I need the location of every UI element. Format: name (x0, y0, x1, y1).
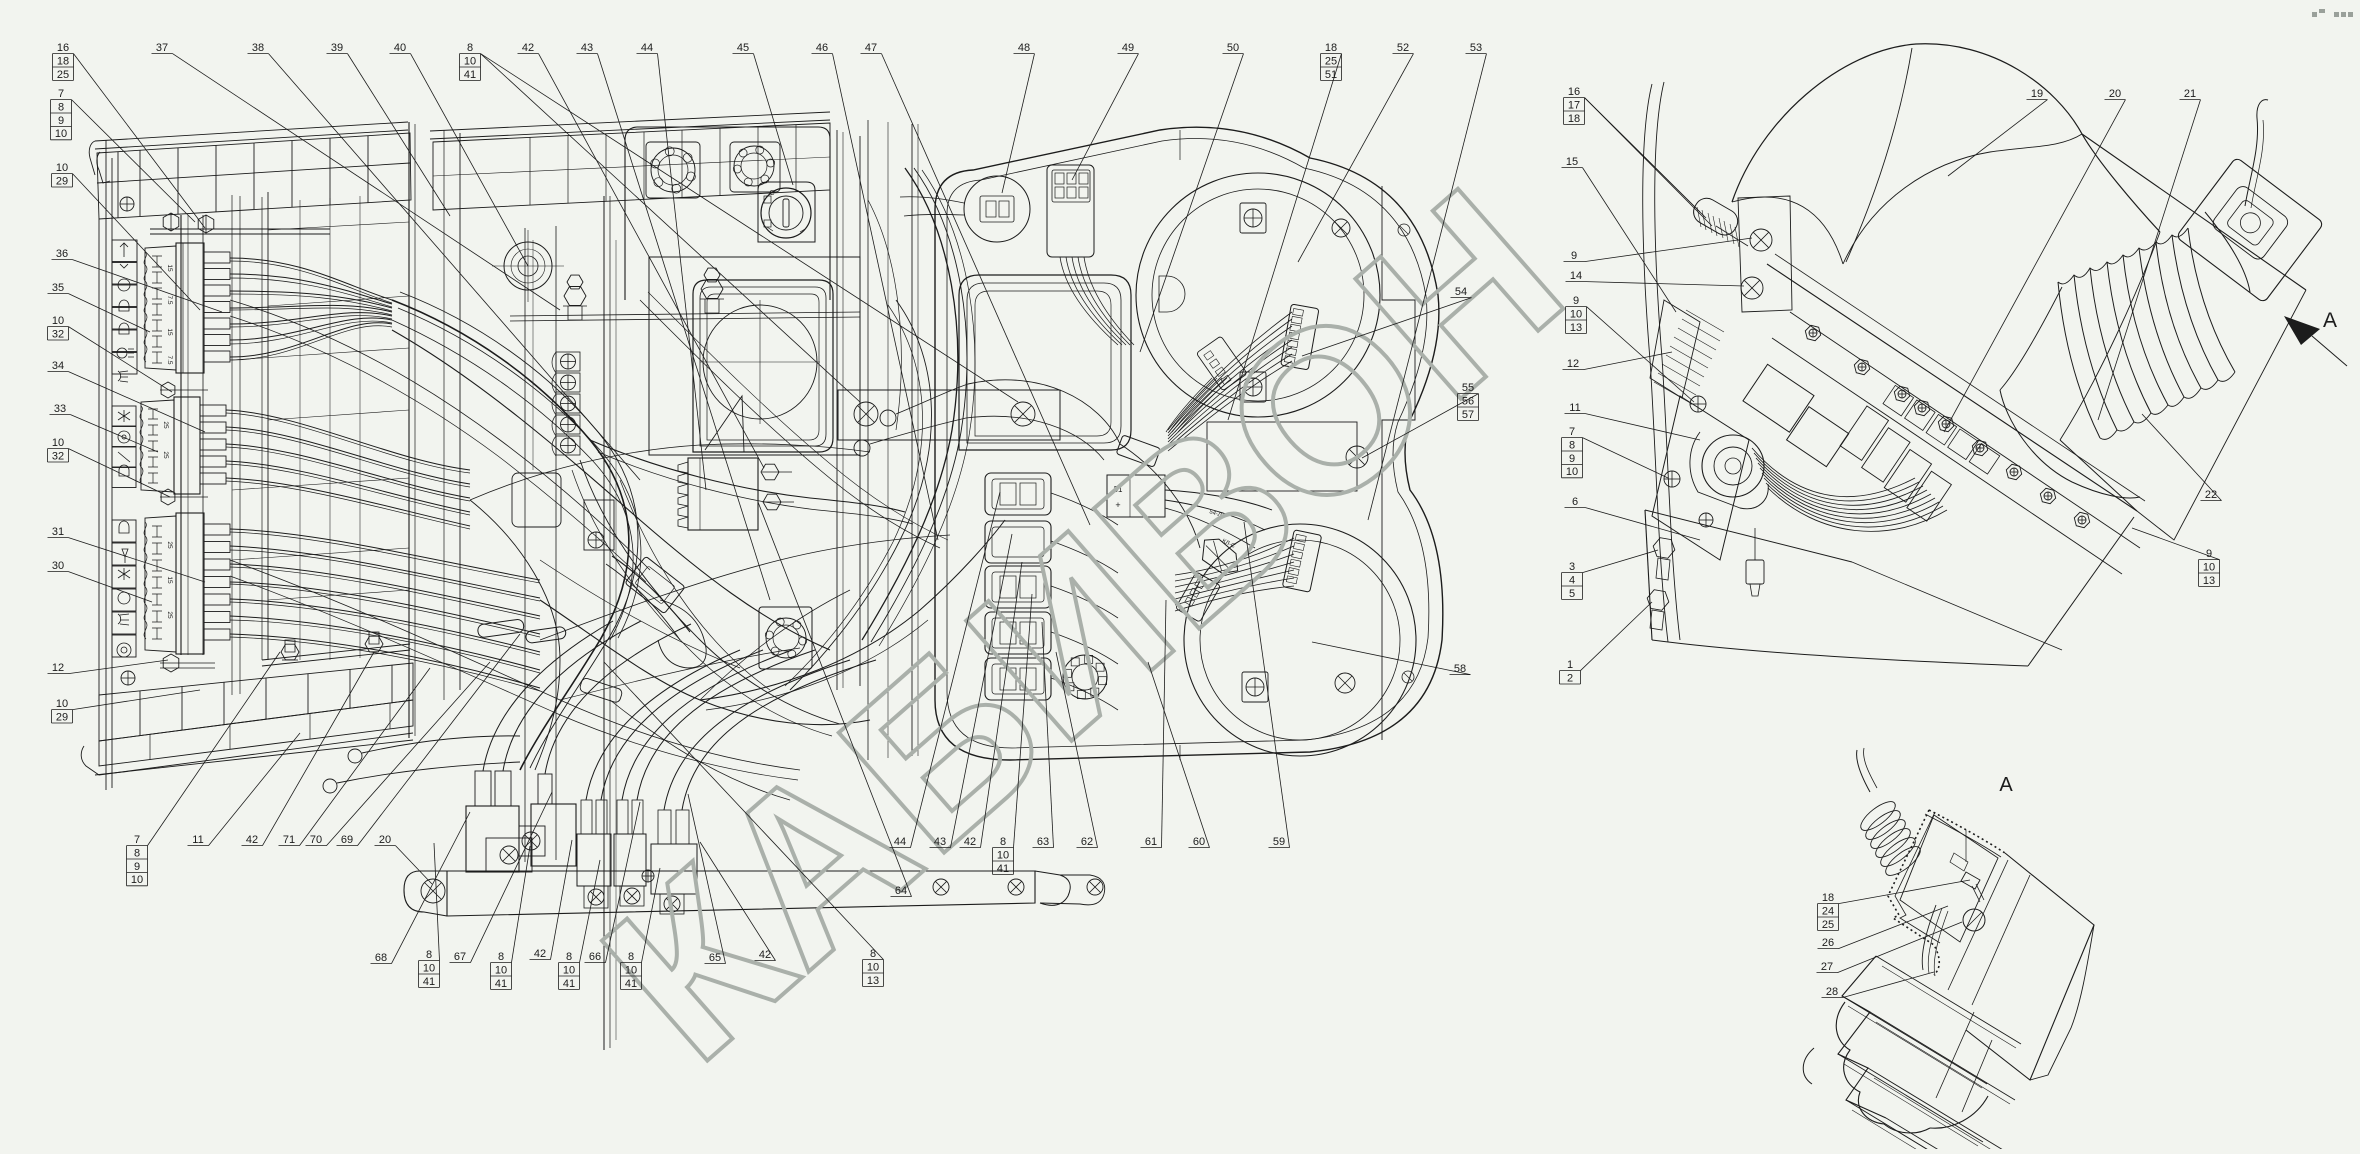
svg-text:64: 64 (895, 885, 907, 897)
svg-text:25: 25 (57, 69, 69, 81)
svg-text:36: 36 (56, 248, 68, 260)
svg-text:17: 17 (1568, 99, 1580, 111)
svg-text:46: 46 (816, 42, 828, 54)
svg-text:42: 42 (522, 42, 534, 54)
svg-text:53: 53 (1470, 42, 1482, 54)
svg-text:19: 19 (2031, 88, 2043, 100)
svg-text:10: 10 (495, 964, 507, 976)
svg-text:28: 28 (1826, 986, 1838, 998)
svg-text:43: 43 (934, 836, 946, 848)
svg-text:20: 20 (2109, 88, 2121, 100)
svg-text:7: 7 (134, 834, 140, 846)
svg-text:18: 18 (1822, 892, 1834, 904)
svg-text:55: 55 (1462, 382, 1474, 394)
svg-text:10: 10 (867, 961, 879, 973)
svg-text:5: 5 (1569, 588, 1575, 600)
svg-text:10: 10 (625, 964, 637, 976)
svg-text:A: A (1999, 774, 2013, 796)
svg-text:10: 10 (52, 437, 64, 449)
svg-text:61: 61 (1145, 836, 1157, 848)
svg-text:15: 15 (1566, 156, 1578, 168)
svg-text:10: 10 (1570, 308, 1582, 320)
svg-text:13: 13 (867, 975, 879, 987)
svg-text:8: 8 (628, 951, 634, 963)
svg-text:41: 41 (563, 978, 575, 990)
svg-text:8: 8 (1569, 439, 1575, 451)
svg-text:41: 41 (625, 978, 637, 990)
svg-text:10: 10 (52, 315, 64, 327)
svg-text:25: 25 (166, 611, 173, 619)
svg-text:9: 9 (2206, 548, 2212, 560)
svg-text:29: 29 (56, 175, 68, 187)
svg-text:4: 4 (1569, 574, 1575, 586)
svg-text:22: 22 (2205, 489, 2217, 501)
svg-text:10: 10 (1566, 466, 1578, 478)
svg-text:41: 41 (997, 863, 1009, 875)
svg-text:69: 69 (341, 834, 353, 846)
svg-text:49: 49 (1122, 42, 1134, 54)
svg-text:63: 63 (1037, 836, 1049, 848)
svg-text:67: 67 (454, 951, 466, 963)
svg-text:25: 25 (166, 541, 173, 549)
svg-text:25: 25 (162, 451, 169, 459)
svg-text:42: 42 (534, 948, 546, 960)
svg-text:8: 8 (1000, 836, 1006, 848)
svg-text:A: A (2323, 309, 2337, 332)
svg-text:16: 16 (1568, 86, 1580, 98)
svg-text:24: 24 (1822, 905, 1834, 917)
svg-text:15: 15 (166, 264, 173, 272)
svg-text:44: 44 (894, 836, 906, 848)
svg-text:47: 47 (865, 42, 877, 54)
svg-text:8: 8 (467, 42, 473, 54)
svg-text:13: 13 (1570, 322, 1582, 334)
svg-text:42: 42 (964, 836, 976, 848)
svg-text:10: 10 (56, 162, 68, 174)
svg-text:41: 41 (423, 976, 435, 988)
svg-text:60: 60 (1193, 836, 1205, 848)
svg-text:48: 48 (1018, 42, 1030, 54)
svg-text:59: 59 (1273, 836, 1285, 848)
svg-text:50: 50 (1227, 42, 1239, 54)
svg-text:39: 39 (331, 42, 343, 54)
svg-text:45: 45 (737, 42, 749, 54)
svg-text:52: 52 (1397, 42, 1409, 54)
svg-text:25: 25 (162, 421, 169, 429)
svg-text:18: 18 (1325, 42, 1337, 54)
svg-text:62: 62 (1081, 836, 1093, 848)
svg-text:9: 9 (134, 861, 140, 873)
svg-text:37: 37 (156, 42, 168, 54)
svg-text:30: 30 (52, 560, 64, 572)
svg-text:10: 10 (997, 849, 1009, 861)
svg-text:68: 68 (375, 952, 387, 964)
svg-text:57: 57 (1462, 409, 1474, 421)
svg-text:12: 12 (52, 662, 64, 674)
svg-text:8: 8 (58, 101, 64, 113)
svg-text:7.5: 7.5 (166, 295, 173, 304)
svg-text:1: 1 (1567, 659, 1573, 671)
svg-text:25: 25 (1325, 55, 1337, 67)
svg-text:7: 7 (1569, 426, 1575, 438)
svg-text:7: 7 (58, 88, 64, 100)
svg-text:26: 26 (1822, 937, 1834, 949)
svg-text:18: 18 (1568, 113, 1580, 125)
svg-text:41: 41 (464, 69, 476, 81)
svg-text:10: 10 (56, 698, 68, 710)
svg-text:9: 9 (1571, 250, 1577, 262)
svg-text:38: 38 (252, 42, 264, 54)
svg-text:27: 27 (1821, 961, 1833, 973)
svg-text:10: 10 (55, 128, 67, 140)
svg-text:34: 34 (52, 360, 64, 372)
svg-text:8: 8 (498, 951, 504, 963)
svg-text:9: 9 (58, 115, 64, 127)
svg-text:8: 8 (870, 948, 876, 960)
svg-text:8: 8 (134, 847, 140, 859)
svg-text:71: 71 (283, 834, 295, 846)
svg-text:32: 32 (52, 450, 64, 462)
svg-text:25: 25 (1822, 919, 1834, 931)
svg-text:16: 16 (57, 42, 69, 54)
svg-text:65: 65 (709, 952, 721, 964)
svg-text:9: 9 (1573, 295, 1579, 307)
svg-text:44: 44 (641, 42, 653, 54)
svg-text:70: 70 (310, 834, 322, 846)
svg-text:66: 66 (589, 951, 601, 963)
svg-text:15: 15 (166, 328, 173, 336)
svg-text:11: 11 (192, 834, 203, 846)
svg-text:13: 13 (2203, 575, 2215, 587)
svg-text:32: 32 (52, 328, 64, 340)
svg-text:10: 10 (464, 55, 476, 67)
svg-text:8: 8 (566, 951, 572, 963)
svg-text:54: 54 (1455, 286, 1467, 298)
svg-text:2: 2 (1567, 672, 1573, 684)
svg-text:10: 10 (423, 962, 435, 974)
svg-text:10: 10 (563, 964, 575, 976)
svg-text:33: 33 (54, 403, 66, 415)
svg-text:18: 18 (57, 55, 69, 67)
svg-text:35: 35 (52, 282, 64, 294)
svg-text:10: 10 (131, 874, 143, 886)
svg-text:8: 8 (426, 949, 432, 961)
svg-text:6: 6 (1572, 496, 1578, 508)
svg-text:9: 9 (1569, 453, 1575, 465)
svg-text:21: 21 (2184, 88, 2196, 100)
svg-text:12: 12 (1567, 358, 1579, 370)
svg-text:15: 15 (166, 576, 173, 584)
svg-text:29: 29 (56, 711, 68, 723)
svg-text:14: 14 (1570, 270, 1582, 282)
svg-text:10: 10 (2203, 561, 2215, 573)
svg-text:3: 3 (1569, 561, 1575, 573)
svg-text:41: 41 (495, 978, 507, 990)
svg-text:42: 42 (246, 834, 258, 846)
svg-text:40: 40 (394, 42, 406, 54)
svg-text:43: 43 (581, 42, 593, 54)
svg-text:7.5: 7.5 (166, 355, 173, 364)
svg-text:31: 31 (52, 526, 64, 538)
svg-text:20: 20 (379, 834, 391, 846)
svg-text:11: 11 (1569, 402, 1580, 414)
